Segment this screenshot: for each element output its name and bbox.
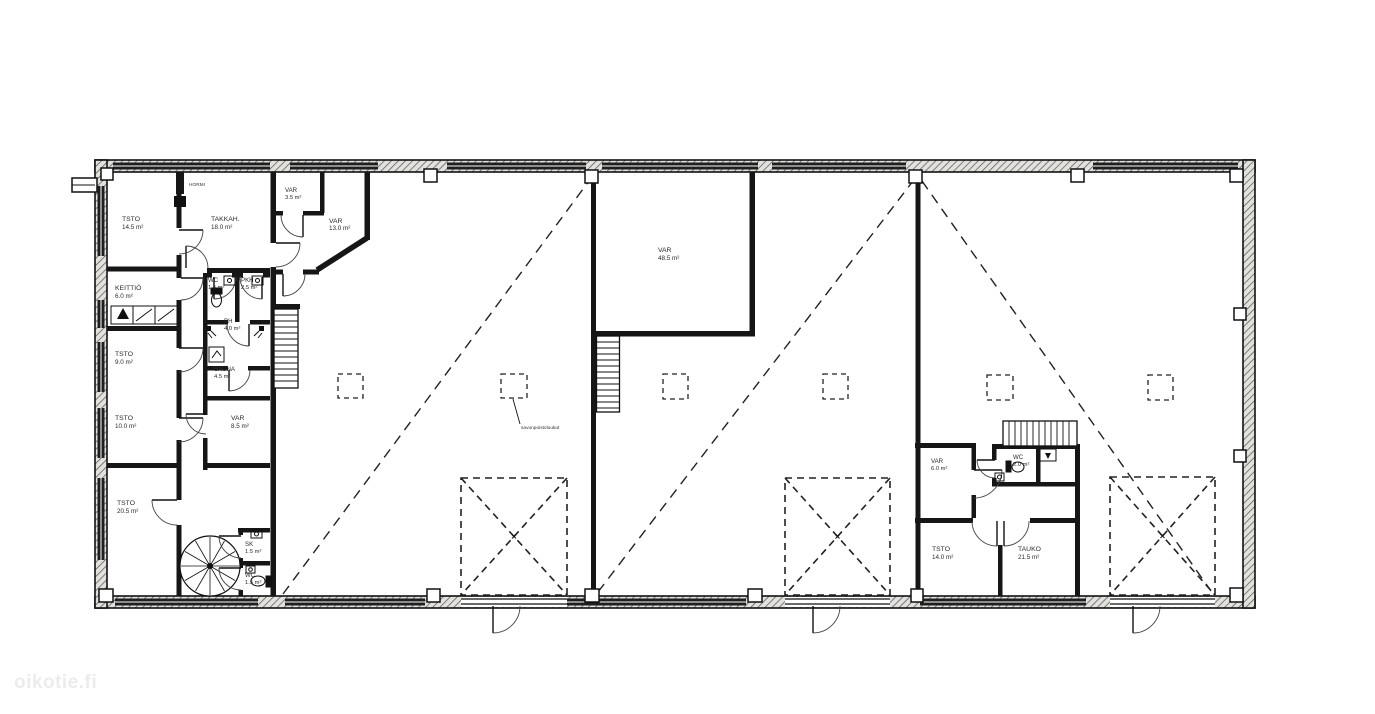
room-name: KEITTIÖ (115, 284, 141, 292)
washing-machine (209, 347, 224, 362)
room-area: 48.5 m² (658, 255, 679, 262)
room-name: TSTO (115, 415, 133, 422)
exterior-vent (72, 178, 97, 192)
room-label-wc-2: WC 2.0 m² (1013, 454, 1029, 468)
room-label-takkah: TAKKAH. 18.0 m² (211, 216, 240, 231)
room-name: TSTO (117, 500, 135, 507)
room-name: TSTO (122, 216, 140, 223)
room-name: VAR (931, 458, 944, 465)
room-area: 6.0 m² (931, 466, 947, 472)
chimney-label: HORMI (189, 182, 205, 188)
room-name: SK (245, 541, 253, 548)
room-label-tsto-14-5: TSTO 14.5 m² (122, 216, 143, 231)
utility-cabinet (1040, 449, 1056, 461)
room-label-tsto-20-5: TSTO 20.5 m² (117, 500, 138, 515)
room-area: 20.5 m² (117, 508, 138, 515)
room-area: 13.0 m² (329, 225, 350, 232)
room-label-sk: SK 1.5 m² (245, 541, 261, 555)
room-area: 14.0 m² (932, 554, 953, 561)
room-area: 14.5 m² (122, 224, 143, 231)
room-name: VAR (329, 218, 343, 225)
room-area: 9.0 m² (115, 359, 133, 366)
room-label-tsto-14: TSTO 14.0 m² (932, 546, 953, 561)
room-area: 21.5 m² (1018, 554, 1039, 561)
room-label-keittio: KEITTIÖ 6.0 m² (115, 284, 141, 300)
chimney-hormi (174, 172, 186, 207)
interior-walls (107, 172, 1080, 596)
staircase-right (1003, 421, 1077, 446)
room-name: TSTO (115, 351, 133, 358)
room-label-wc-1-5-upper: WC 1.5 m² (208, 277, 224, 291)
room-label-sauna: SAUNA 4.5 m² (214, 366, 236, 380)
room-name: PKH (241, 277, 254, 284)
room-area: 2.5 m² (241, 285, 257, 291)
room-name: SAUNA (214, 366, 236, 373)
room-area: 2.0 m² (1013, 462, 1029, 468)
room-label-var-8-5: VAR 8.5 m² (231, 415, 249, 430)
smoke-hatch-label: savunpoistoluukut (521, 425, 560, 431)
floor-plan-page: TSTO 14.5 m² TAKKAH. 18.0 m² VAR 3.5 m² … (0, 0, 1375, 714)
room-name: VAR (658, 247, 672, 254)
room-area: 1.5 m² (208, 285, 224, 291)
room-area: 8.5 m² (231, 423, 249, 430)
room-area: 1.5 m² (245, 580, 261, 586)
staircase-middle (597, 336, 620, 412)
spiral-staircase (180, 536, 240, 596)
room-label-tauko: TAUKO 21.5 m² (1018, 546, 1041, 561)
room-label-wc-1-5-lower: WC 1.5 m² (245, 572, 261, 586)
room-label-var-3-5: VAR 3.5 m² (285, 187, 301, 201)
room-area: 4.0 m² (224, 326, 240, 332)
watermark-oikotie: oikotie.fi (14, 672, 97, 693)
room-area: 3.5 m² (285, 195, 301, 201)
room-label-var-48-5: VAR 48.5 m² (658, 247, 679, 262)
room-area: 18.0 m² (211, 224, 232, 231)
roof-diagonals (283, 181, 1211, 594)
room-name: WC (208, 277, 219, 284)
room-name: WC (1013, 454, 1024, 461)
kitchen-counter (111, 306, 177, 324)
window-bands (98, 163, 1239, 606)
room-label-var-6: VAR 6.0 m² (931, 458, 947, 472)
room-area: 1.5 m² (245, 549, 261, 555)
exterior-walls (95, 160, 1255, 608)
floor-plan-canvas: TSTO 14.5 m² TAKKAH. 18.0 m² VAR 3.5 m² … (0, 0, 1375, 714)
room-labels: TSTO 14.5 m² TAKKAH. 18.0 m² VAR 3.5 m² … (115, 182, 1041, 586)
angled-wall (317, 238, 367, 270)
room-name: TSTO (932, 546, 950, 553)
room-name: PH (224, 318, 232, 325)
room-name: TAUKO (1018, 546, 1041, 553)
room-area: 10.0 m² (115, 423, 136, 430)
room-name: VAR (231, 415, 245, 422)
room-name: WC (245, 572, 256, 579)
room-area: 6.0 m² (115, 293, 133, 300)
room-label-var-13: VAR 13.0 m² (329, 218, 350, 232)
smoke-hatch-leader (513, 399, 520, 424)
staircase-left (274, 309, 298, 388)
room-name: VAR (285, 187, 298, 194)
room-label-pkh: PKH 2.5 m² (241, 277, 257, 291)
room-name: TAKKAH. (211, 216, 240, 223)
room-label-tsto-10: TSTO 10.0 m² (115, 415, 136, 430)
room-label-tsto-9: TSTO 9.0 m² (115, 351, 133, 366)
room-area: 4.5 m² (214, 374, 230, 380)
